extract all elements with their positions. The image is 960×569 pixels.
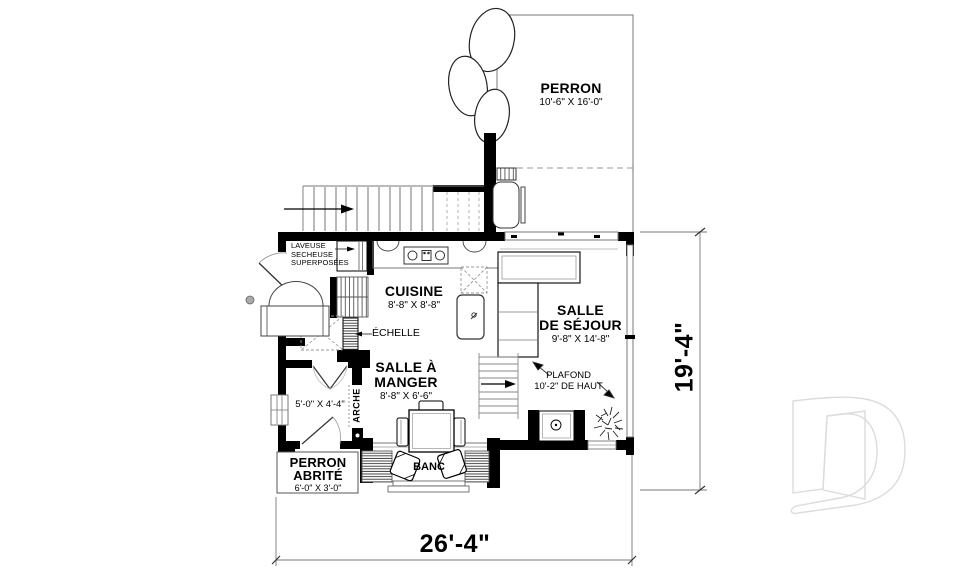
desk-nook <box>246 282 329 336</box>
manger-name-2: MANGER <box>358 375 454 390</box>
arche-note: ARCHE <box>352 387 363 425</box>
cuisine-name: CUISINE <box>358 284 470 299</box>
potted-plant <box>594 407 623 440</box>
room-label-manger: SALLE À MANGER 8'-8" X 6'-6" <box>358 360 454 402</box>
manger-dims: 8'-8" X 6'-6" <box>358 391 454 402</box>
perron-abrite-name-2: ABRITÉ <box>285 469 351 482</box>
dining-table <box>409 410 454 452</box>
room-label-perron-abrite: PERRON ABRITÉ 6'-0" X 3'-0" <box>285 456 351 493</box>
dining-table-set <box>397 401 465 452</box>
perron-dims: 10'-6" X 16'-0" <box>505 97 637 108</box>
floor-plan-drawing <box>0 0 960 569</box>
room-label-sejour: SALLE DE SÉJOUR 9'-8" X 14'-8" <box>518 303 643 345</box>
perron-abrite-dims: 6'-0" X 3'-0" <box>285 483 351 493</box>
sejour-name-1: SALLE <box>518 303 643 318</box>
plafond-note: PLAFOND 10'-2" DE HAUT <box>526 370 611 392</box>
step-1 <box>393 481 465 486</box>
sejour-dims: 9'-8" X 14'-8" <box>518 334 643 345</box>
watermark-door-shape <box>823 411 865 499</box>
stairs-up-arrow <box>341 205 354 214</box>
stove <box>404 247 448 264</box>
banc-note: BANC <box>409 461 449 473</box>
entry-door-swing <box>259 253 287 263</box>
wall-fixture-dot <box>356 434 360 438</box>
perron-name: PERRON <box>505 81 637 96</box>
floor-plan-canvas: PERRON 10'-6" X 16'-0" LAVEUSE SECHEUSE … <box>0 0 960 569</box>
sejour-name-2: DE SÉJOUR <box>518 318 643 333</box>
manger-name-1: SALLE À <box>358 360 454 375</box>
room-label-cuisine: CUISINE 8'-8" X 8'-8" <box>358 284 470 311</box>
desk-lamp <box>246 296 254 304</box>
cuisine-dims: 8'-8" X 8'-8" <box>358 300 470 311</box>
watermark-d-logo <box>791 397 905 513</box>
tree-cluster <box>444 4 521 146</box>
fireplace <box>539 411 574 441</box>
room-label-perron: PERRON 10'-6" X 16'-0" <box>505 81 637 108</box>
bbq-grill <box>493 168 525 228</box>
vestibule-dims: 5'-0" X 4'-4" <box>288 399 352 410</box>
dimension-overall-width: 26'-4" <box>355 531 555 557</box>
staircase-lower <box>479 353 518 419</box>
step-2 <box>388 486 469 492</box>
sink-right <box>463 241 486 252</box>
staircase-upper <box>284 186 484 231</box>
sink-left <box>377 241 399 251</box>
echelle-note: ÉCHELLE <box>372 328 426 339</box>
laundry-note: LAVEUSE SECHEUSE SUPERPOSÉES <box>291 242 361 268</box>
stairs-down-arrow <box>505 380 516 388</box>
dimension-overall-depth: 19'-4" <box>672 295 698 420</box>
